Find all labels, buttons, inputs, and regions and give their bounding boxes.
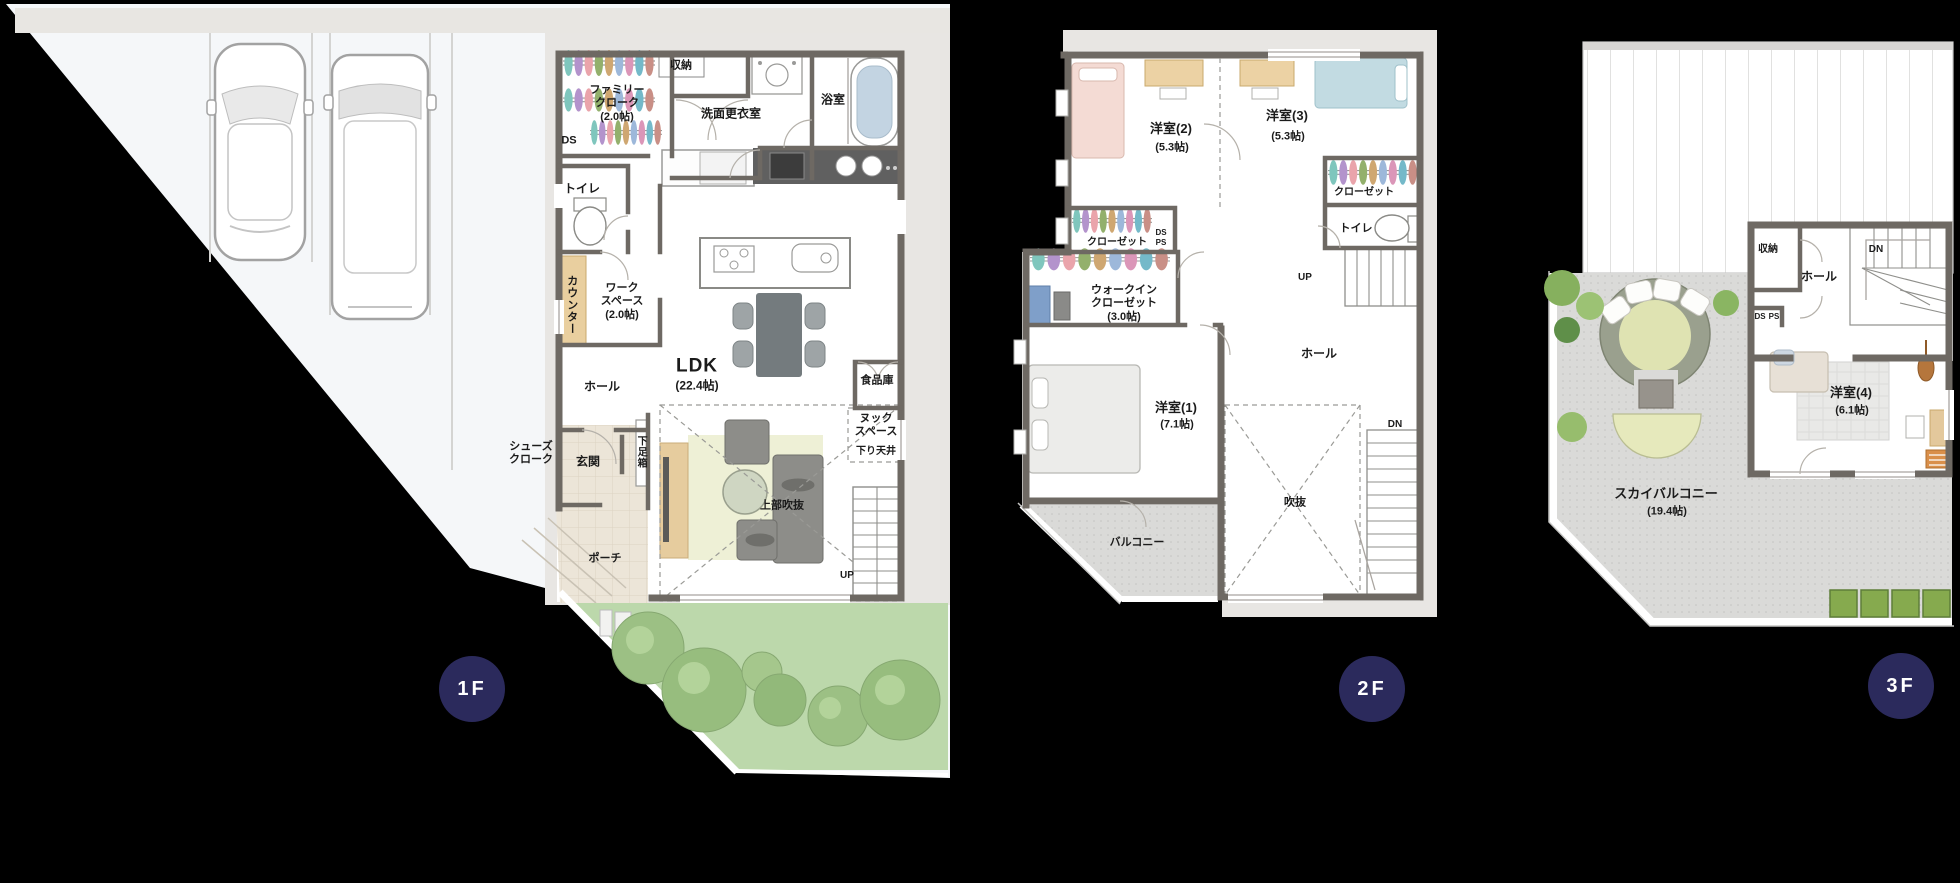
room-label-room2: 洋室(2) xyxy=(1150,121,1192,137)
room-label-toilet-2f: トイレ xyxy=(1340,222,1373,235)
room-label-room4-size: (6.1帖) xyxy=(1835,404,1869,417)
room-label-sky-balcony: スカイバルコニー xyxy=(1614,486,1717,502)
room-label-hall-3f: ホール xyxy=(1801,270,1837,285)
room-label-room3: 洋室(3) xyxy=(1266,108,1308,124)
room-label-wic: ウォークイン クローゼット (3.0帖) xyxy=(1091,284,1157,324)
room-label-lowered-ceiling: 下り天井 xyxy=(856,446,896,458)
floor-badge-3f: 3F xyxy=(1868,653,1934,719)
room-label-workspace: ワーク スペース (2.0帖) xyxy=(601,282,644,322)
room-label-closet-left: クローゼット xyxy=(1087,237,1147,249)
room-label-ps-2f: PS xyxy=(1156,238,1167,248)
room-label-closet-right: クローゼット xyxy=(1334,187,1394,199)
room-label-entrance: 玄関 xyxy=(576,455,600,470)
room-label-porch: ポーチ xyxy=(589,552,622,565)
room-label-ds-1f: DS xyxy=(561,134,576,147)
room-label-hall-1f: ホール xyxy=(584,380,620,395)
room-label-family-cloak: ファミリー クローク (2.0帖) xyxy=(590,84,645,124)
room-label-toilet-1f: トイレ xyxy=(564,182,600,197)
room-label-shoe-box: 下足箱 xyxy=(634,436,646,469)
room-label-nook: ヌック スペース xyxy=(855,413,898,440)
room-label-void: 吹抜 xyxy=(1284,496,1306,509)
room-label-room3-size: (5.3帖) xyxy=(1271,130,1305,143)
room-label-ds-3f: DS xyxy=(1754,312,1765,322)
room-label-ldk: LDK xyxy=(676,354,718,377)
room-label-hall-2f: ホール xyxy=(1301,347,1337,362)
room-label-shoes-cloak: シューズ クローク xyxy=(509,441,553,468)
room-label-washroom: 洗面更衣室 xyxy=(701,107,761,122)
stairs-label-up-2f: UP xyxy=(1298,272,1312,284)
room-label-ps-3f: PS xyxy=(1769,312,1780,322)
stairs-label-dn-3f: DN xyxy=(1869,244,1883,256)
room-label-room1-size: (7.1帖) xyxy=(1160,418,1194,431)
room-label-storage-1f: 収納 xyxy=(670,59,692,72)
room-label-counter: カウンター xyxy=(564,275,577,335)
room-label-room4: 洋室(4) xyxy=(1830,385,1872,401)
stairs-label-up-1f: UP xyxy=(840,570,854,582)
room-label-balcony: バルコニー xyxy=(1110,536,1165,549)
room-label-room2-size: (5.3帖) xyxy=(1155,141,1189,154)
room-label-pantry: 食品庫 xyxy=(861,374,894,387)
room-label-upper-void: 上部吹抜 xyxy=(760,499,804,512)
room-label-bathroom: 浴室 xyxy=(821,93,845,108)
floor-badge-1f: 1F xyxy=(439,656,505,722)
stairs-label-dn-2f: DN xyxy=(1388,419,1402,431)
floorplan-canvas: ファミリー クローク (2.0帖) DS 収納 洗面更衣室 浴室 トイレ カウン… xyxy=(0,0,1960,883)
room-label-storage-3f: 収納 xyxy=(1758,244,1778,256)
room-label-ds-2f: DS xyxy=(1155,228,1166,238)
room-label-room1: 洋室(1) xyxy=(1155,400,1197,416)
room-label-ldk-size: (22.4帖) xyxy=(675,379,718,394)
label-layer: ファミリー クローク (2.0帖) DS 収納 洗面更衣室 浴室 トイレ カウン… xyxy=(0,0,1960,883)
floor-badge-2f: 2F xyxy=(1339,656,1405,722)
room-label-sky-balcony-size: (19.4帖) xyxy=(1647,505,1687,518)
